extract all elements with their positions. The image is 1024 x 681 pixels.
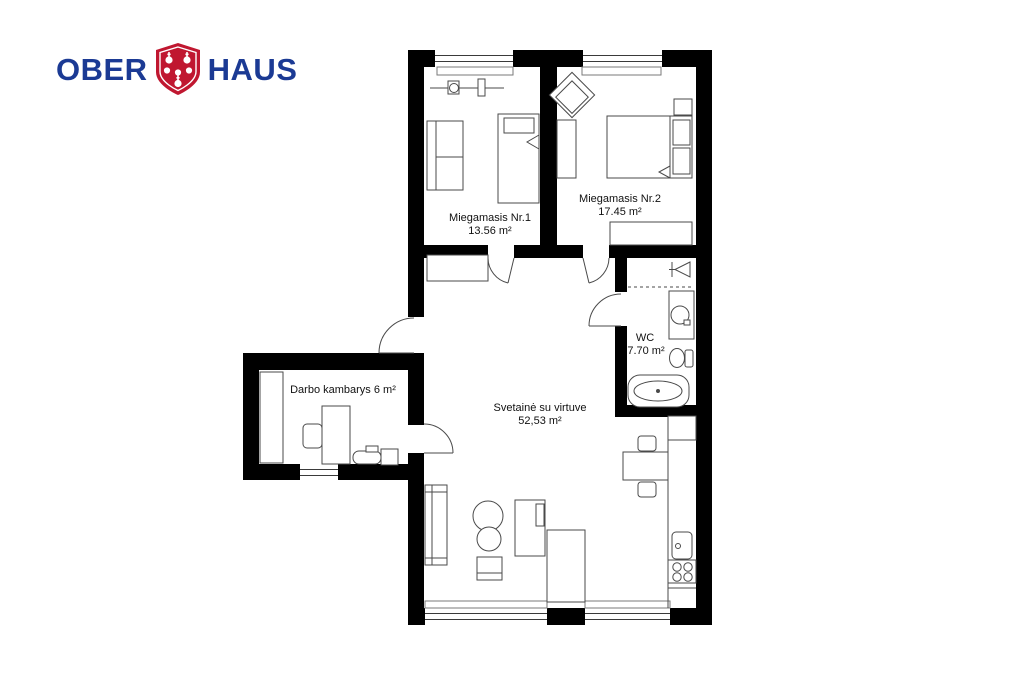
room-labels: Miegamasis Nr.1 13.56 m² Miegamasis Nr.2… bbox=[290, 193, 665, 427]
bedroom2-door-opening bbox=[583, 245, 609, 258]
living-cabinet bbox=[515, 500, 545, 556]
wc-label: WC bbox=[636, 332, 654, 344]
sill-living-1 bbox=[425, 601, 547, 608]
window-bottom-2 bbox=[585, 608, 670, 625]
bedroom2-dresser bbox=[557, 120, 576, 178]
bedroom1-area: 13.56 m² bbox=[468, 225, 512, 237]
bedroom2-bed bbox=[607, 116, 692, 178]
bedroom2-label: Miegamasis Nr.2 bbox=[579, 193, 661, 205]
window-top-1 bbox=[435, 50, 513, 67]
window-bottom-1 bbox=[425, 608, 547, 625]
wc-sink bbox=[669, 291, 694, 339]
study-desk bbox=[322, 406, 350, 464]
window-top-2 bbox=[583, 50, 662, 67]
bedroom1-sofa bbox=[427, 121, 463, 190]
study-heater bbox=[353, 446, 398, 465]
living-tv-unit bbox=[547, 530, 585, 602]
kitchen-stove bbox=[668, 560, 696, 583]
living-label: Svetainė su virtuve bbox=[494, 402, 587, 414]
bedroom1-door bbox=[488, 258, 514, 283]
sill-bedroom2 bbox=[582, 67, 661, 75]
wall-wc-left bbox=[615, 258, 627, 405]
wall-right bbox=[696, 50, 712, 625]
dining-chair-1 bbox=[638, 436, 656, 451]
bedroom2-area: 17.45 m² bbox=[598, 206, 642, 218]
living-round-table bbox=[473, 501, 503, 551]
study-door bbox=[424, 424, 453, 453]
entry-door-opening bbox=[408, 317, 424, 353]
bedroom1-door-opening bbox=[488, 245, 514, 258]
living-sofa bbox=[425, 485, 447, 565]
bedroom2-wardrobe bbox=[610, 222, 692, 245]
study-chair bbox=[303, 424, 322, 448]
living-wardrobe-niche bbox=[427, 255, 488, 281]
bedroom2-door bbox=[583, 258, 609, 283]
wc-toilet bbox=[670, 349, 694, 368]
bedroom1-wall-rack bbox=[430, 79, 504, 96]
sill-living-2 bbox=[585, 601, 670, 608]
study-wardrobe bbox=[260, 372, 283, 463]
kitchen-sink bbox=[672, 532, 692, 559]
wc-bathtub bbox=[628, 375, 689, 407]
bedroom1-label: Miegamasis Nr.1 bbox=[449, 212, 531, 224]
dining-chair-2 bbox=[638, 482, 656, 497]
wc-vent-icon bbox=[669, 262, 690, 277]
study-label: Darbo kambarys 6 m² bbox=[290, 384, 396, 396]
window-study bbox=[300, 464, 338, 480]
study-door-opening bbox=[408, 425, 424, 453]
living-area: 52,53 m² bbox=[518, 415, 562, 427]
bedroom1-bed bbox=[498, 114, 539, 203]
sill-bedroom1 bbox=[437, 67, 513, 75]
furniture bbox=[260, 72, 696, 608]
bedroom2-nightstand bbox=[674, 99, 692, 115]
wall-study-top bbox=[243, 353, 424, 370]
dining-table bbox=[623, 452, 668, 480]
floorplan: Miegamasis Nr.1 13.56 m² Miegamasis Nr.2… bbox=[0, 0, 1024, 681]
living-stool bbox=[477, 557, 502, 580]
wc-area: 7.70 m² bbox=[627, 345, 665, 357]
wc-door-opening bbox=[615, 292, 627, 326]
wall-study-left bbox=[243, 353, 259, 480]
